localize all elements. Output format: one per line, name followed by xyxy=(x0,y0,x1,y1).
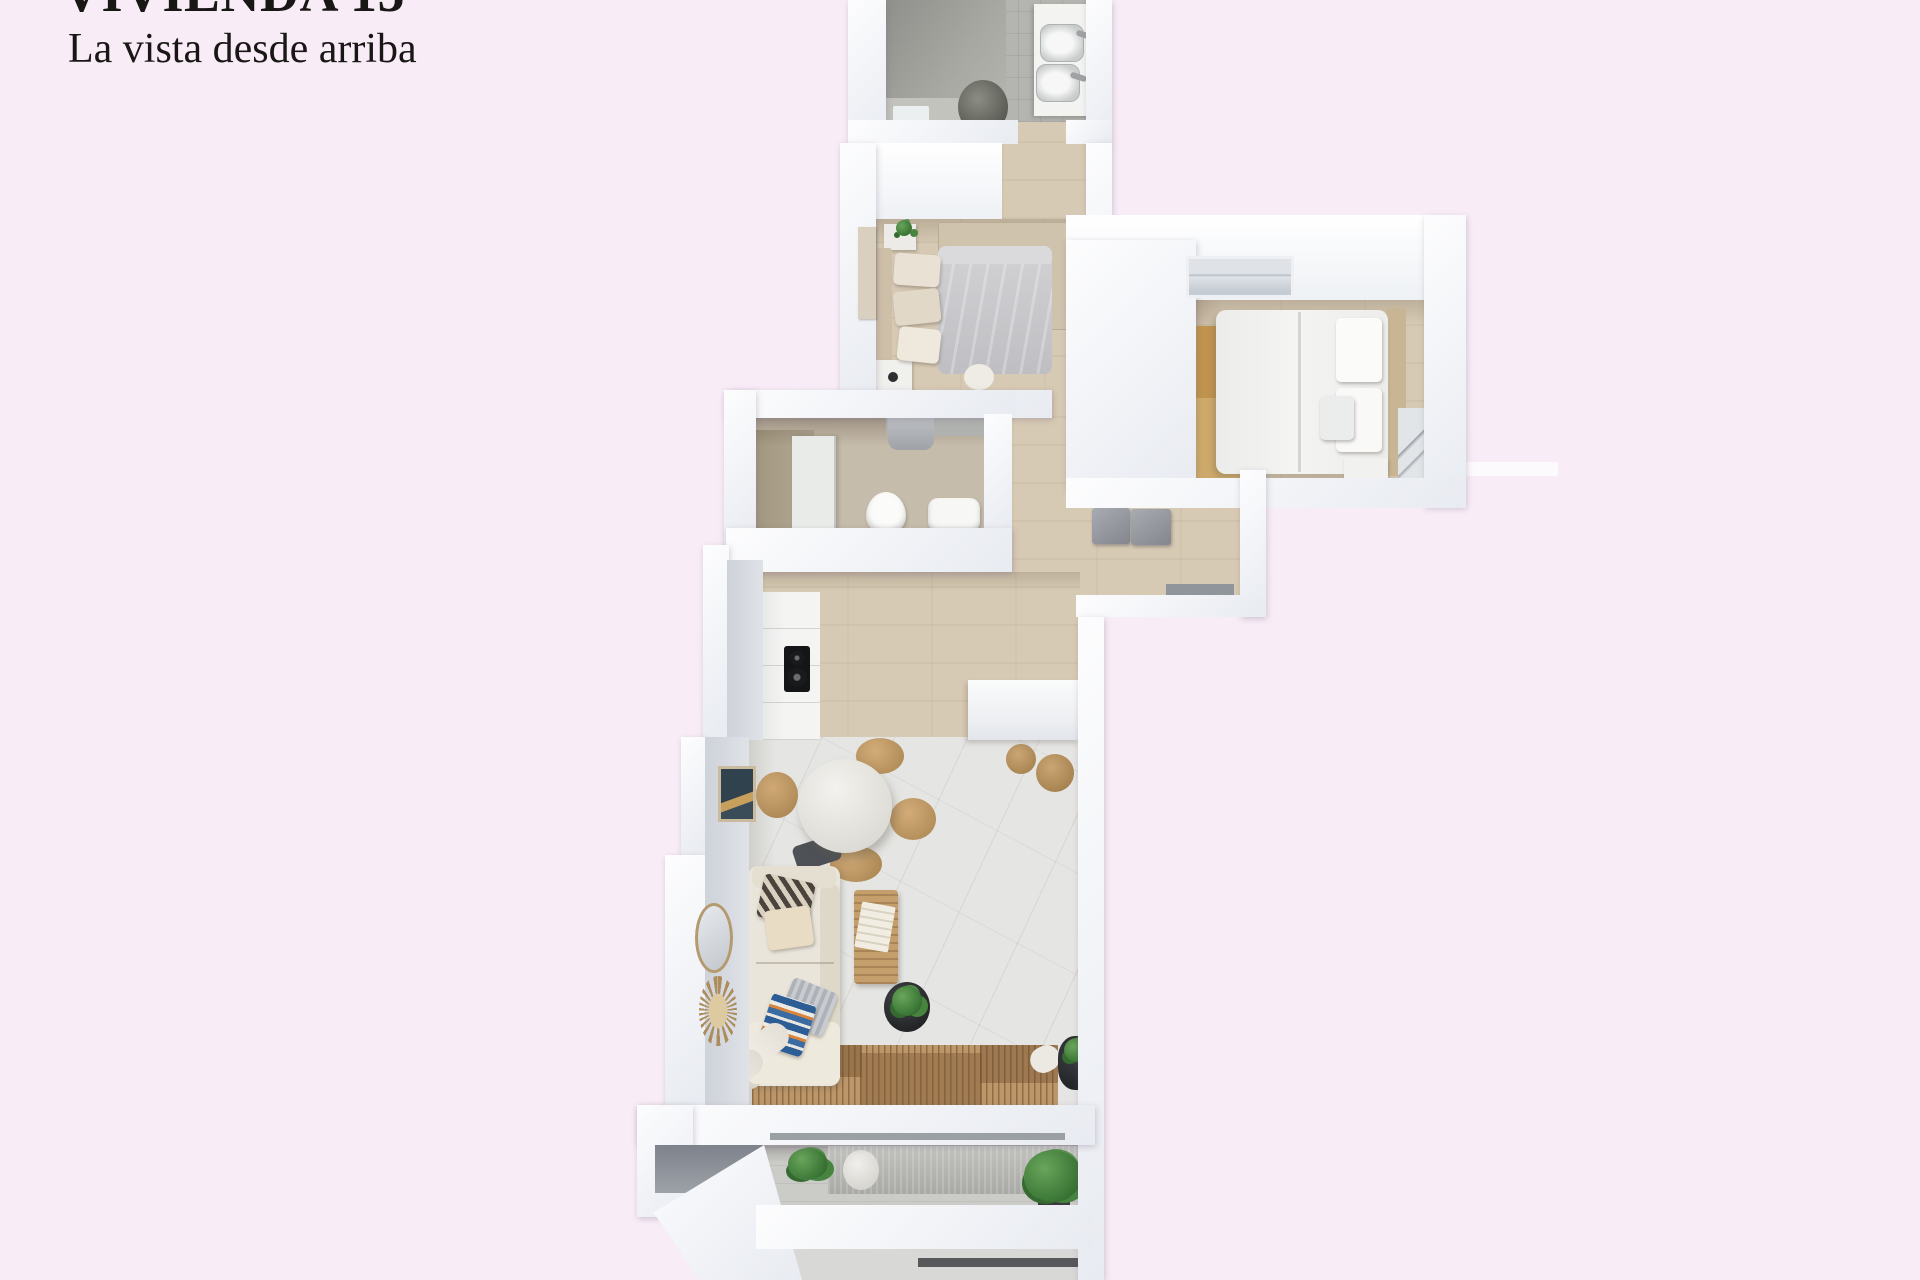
dining-chair xyxy=(756,772,798,818)
dining-chair xyxy=(890,798,936,840)
bed-1-headboard xyxy=(874,248,892,372)
wall-inner-face xyxy=(727,560,763,740)
window xyxy=(1186,256,1294,298)
nightstand xyxy=(1344,458,1388,480)
bidet-sink xyxy=(928,498,980,532)
wall xyxy=(848,120,1018,144)
outdoor-pouf xyxy=(843,1150,879,1190)
cooktop xyxy=(784,646,810,692)
duvet-crease xyxy=(1298,312,1301,472)
bedroom-1-stool xyxy=(964,364,994,390)
wall xyxy=(860,143,1002,219)
dining-table xyxy=(798,759,892,853)
wall xyxy=(681,737,705,859)
pillow xyxy=(893,252,941,287)
pillow xyxy=(896,326,941,364)
rattan-pouf xyxy=(1036,754,1074,792)
wall xyxy=(1078,617,1104,1280)
wall-art xyxy=(858,227,876,319)
round-mirror xyxy=(695,903,733,973)
seat-seam xyxy=(756,962,834,964)
pillow xyxy=(1336,318,1382,382)
wall xyxy=(703,545,729,740)
framed-artwork xyxy=(718,766,756,822)
sliding-door-track xyxy=(770,1133,1065,1140)
pillow xyxy=(892,288,941,327)
wall xyxy=(726,390,1016,418)
sink-basin xyxy=(1036,64,1080,102)
exterior-ledge xyxy=(1462,462,1558,476)
wardrobe-block xyxy=(1066,240,1196,490)
dresser-detail xyxy=(888,372,898,382)
terrace-plant xyxy=(1024,1150,1082,1202)
potted-plant xyxy=(892,986,922,1016)
balcony-railing-line xyxy=(918,1258,1093,1267)
page-title: VIVIENDA 15 xyxy=(62,0,417,20)
wall xyxy=(984,414,1012,532)
wall xyxy=(1066,120,1112,144)
terrace-plant xyxy=(788,1148,828,1180)
hall-bench-cushion xyxy=(1131,509,1171,545)
wall xyxy=(726,528,1012,572)
wall xyxy=(1066,478,1466,508)
throw-pillow xyxy=(1320,396,1354,440)
wall xyxy=(756,1205,1093,1249)
pillow xyxy=(763,905,814,951)
potted-plant xyxy=(896,220,912,236)
wall xyxy=(1076,595,1266,617)
shower-partition xyxy=(792,436,836,532)
page-subtitle: La vista desde arriba xyxy=(68,28,417,70)
hall-bench-cushion xyxy=(1092,508,1130,544)
sunburst-mirror xyxy=(699,976,737,1046)
built-in-cabinet xyxy=(968,680,1080,740)
title-block: VIVIENDA 15 La vista desde arriba xyxy=(62,0,417,70)
bed-1-sheet-fold xyxy=(938,246,1052,264)
wall xyxy=(665,855,705,1107)
wall xyxy=(724,390,756,545)
rattan-pouf xyxy=(1006,744,1036,774)
floor-plan xyxy=(0,0,1920,1280)
wall xyxy=(1424,215,1466,507)
bed-1-duvet xyxy=(938,246,1052,374)
